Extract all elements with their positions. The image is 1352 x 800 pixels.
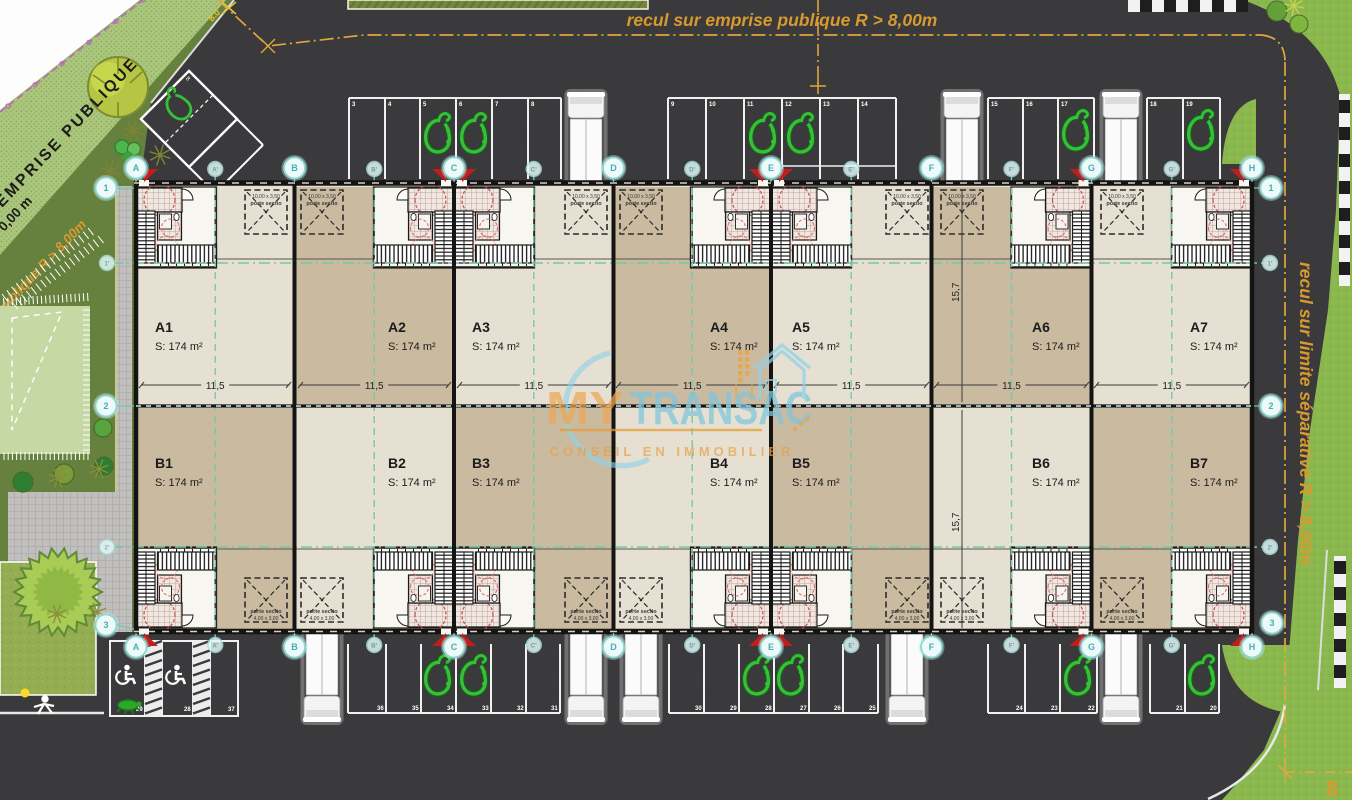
svg-text:2’: 2’ [1267,546,1272,552]
svg-text:S: 174 m²: S: 174 m² [710,341,758,353]
svg-text:B: B [291,163,298,173]
svg-text:B3: B3 [472,455,490,471]
svg-text:14: 14 [861,102,868,108]
svg-text:S: 174 m²: S: 174 m² [1032,477,1080,489]
svg-text:TRANSAC: TRANSAC [630,382,812,434]
svg-text:35: 35 [412,706,419,712]
svg-text:porte sectio: porte sectio [570,609,602,615]
svg-text:11,5: 11,5 [524,381,543,392]
svg-text:E: E [768,642,774,652]
svg-text:B2: B2 [388,455,406,471]
svg-text:19: 19 [1186,102,1193,108]
svg-text:B7: B7 [1190,455,1208,471]
svg-text:S: 174 m²: S: 174 m² [388,341,436,353]
svg-text:2: 2 [103,401,108,411]
svg-text:4,00 x 3,00: 4,00 x 3,00 [895,616,920,622]
svg-text:10,00 x 3,50: 10,00 x 3,50 [1108,194,1136,200]
svg-text:porte sectio: porte sectio [891,609,923,615]
svg-text:24: 24 [1016,706,1023,712]
svg-text:porte sectio: porte sectio [1106,201,1138,207]
svg-text:10,00 x 3,50: 10,00 x 3,50 [572,194,600,200]
svg-text:15: 15 [991,102,998,108]
svg-text:A3: A3 [472,319,490,335]
svg-text:11,5: 11,5 [842,381,861,392]
svg-text:S: 174 m²: S: 174 m² [792,341,840,353]
svg-text:2’: 2’ [104,546,109,552]
svg-text:12: 12 [785,102,792,108]
svg-text:A5: A5 [792,319,810,335]
svg-text:1: 1 [1268,183,1273,193]
svg-text:A4: A4 [710,319,728,335]
svg-text:17: 17 [1061,102,1068,108]
svg-text:H: H [1249,163,1256,173]
svg-text:29: 29 [730,706,737,712]
svg-text:8: 8 [1326,776,1338,800]
svg-text:13: 13 [823,102,830,108]
svg-text:30: 30 [695,706,702,712]
svg-text:37: 37 [228,707,235,713]
svg-text:porte sectio: porte sectio [625,201,657,207]
svg-text:S: 174 m²: S: 174 m² [155,477,203,489]
svg-text:1’: 1’ [104,262,109,268]
svg-text:S: 174 m²: S: 174 m² [1190,341,1238,353]
svg-text:A: A [133,642,140,652]
svg-text:E’: E’ [848,644,854,650]
svg-text:D: D [610,163,617,173]
svg-text:recul sur limite séparative R: recul sur limite séparative R > 8,00m [1296,262,1316,565]
svg-text:36: 36 [377,706,384,712]
svg-text:31: 31 [551,706,558,712]
svg-text:4,00 x 3,00: 4,00 x 3,00 [310,616,335,622]
svg-text:porte sectio: porte sectio [250,201,282,207]
svg-text:porte sectio: porte sectio [306,609,338,615]
svg-text:E’: E’ [848,168,854,174]
svg-text:C: C [451,163,458,173]
svg-text:18: 18 [1150,102,1157,108]
svg-text:22: 22 [1088,706,1095,712]
svg-text:A’: A’ [212,168,218,174]
svg-text:11,5: 11,5 [1162,381,1181,392]
svg-text:11,5: 11,5 [365,381,384,392]
svg-text:15,7: 15,7 [951,512,962,532]
svg-text:16: 16 [1026,102,1033,108]
svg-text:B6: B6 [1032,455,1050,471]
svg-text:11: 11 [747,102,754,108]
svg-text:F’: F’ [1009,644,1015,650]
svg-text:10,00 x 3,50: 10,00 x 3,50 [252,194,280,200]
svg-text:26: 26 [834,706,841,712]
svg-text:4,00 x 3,00: 4,00 x 3,00 [629,616,654,622]
svg-text:B: B [291,642,298,652]
svg-text:3: 3 [1269,618,1274,628]
svg-text:15,7: 15,7 [951,282,962,302]
svg-text:MY: MY [546,382,624,434]
svg-text:porte sectio: porte sectio [306,201,338,207]
svg-text:D: D [610,642,617,652]
svg-text:4,00 x 3,00: 4,00 x 3,00 [574,616,599,622]
svg-text:E: E [768,163,774,173]
svg-text:D’: D’ [689,168,695,174]
svg-text:A6: A6 [1032,319,1050,335]
svg-text:porte sectio: porte sectio [250,609,282,615]
svg-text:G: G [1088,163,1095,173]
svg-text:G: G [1088,642,1095,652]
svg-text:porte sectio: porte sectio [625,609,657,615]
svg-text:C’: C’ [531,168,537,174]
svg-text:C’: C’ [531,644,537,650]
svg-text:F: F [929,163,935,173]
svg-text:C: C [451,642,458,652]
svg-text:33: 33 [482,706,489,712]
svg-text:10: 10 [709,102,716,108]
svg-text:A: A [133,163,140,173]
svg-text:2: 2 [1268,401,1273,411]
svg-text:porte sectio: porte sectio [570,201,602,207]
svg-text:S: 174 m²: S: 174 m² [792,477,840,489]
svg-text:4,00 x 3,00: 4,00 x 3,00 [1110,616,1135,622]
svg-text:S: 174 m²: S: 174 m² [388,477,436,489]
svg-text:10,00 x 3,50: 10,00 x 3,50 [627,194,655,200]
svg-text:28: 28 [765,706,772,712]
svg-text:3: 3 [103,620,108,630]
svg-text:S: 174 m²: S: 174 m² [1190,477,1238,489]
svg-text:10,00 x 3,50: 10,00 x 3,50 [308,194,336,200]
svg-text:F’: F’ [1009,168,1015,174]
svg-text:A’: A’ [212,644,218,650]
svg-text:1: 1 [103,183,108,193]
svg-text:S: 174 m²: S: 174 m² [710,477,758,489]
svg-text:CONSEIL EN IMMOBILIER: CONSEIL EN IMMOBILIER [550,444,795,459]
svg-text:B1: B1 [155,455,173,471]
svg-text:porte sectio: porte sectio [1106,609,1138,615]
svg-text:27: 27 [800,706,807,712]
svg-text:32: 32 [517,706,524,712]
svg-text:21: 21 [1176,706,1183,712]
svg-text:B5: B5 [792,455,810,471]
svg-text:B’: B’ [371,644,377,650]
svg-text:11,5: 11,5 [206,381,225,392]
svg-text:10,00 x 3,50: 10,00 x 3,50 [893,194,921,200]
svg-text:S: 174 m²: S: 174 m² [472,477,520,489]
svg-text:28: 28 [184,707,191,713]
svg-text:S: 174 m²: S: 174 m² [472,341,520,353]
svg-text:20: 20 [1210,706,1217,712]
svg-text:H: H [1249,642,1256,652]
svg-text:B’: B’ [371,168,377,174]
svg-text:G’: G’ [1169,168,1176,174]
svg-text:34: 34 [447,706,454,712]
svg-text:23: 23 [1051,706,1058,712]
svg-text:recul sur emprise publique R >: recul sur emprise publique R > 8,00m [627,10,938,30]
svg-text:G’: G’ [1169,644,1176,650]
svg-text:4,00 x 3,00: 4,00 x 3,00 [254,616,279,622]
svg-text:1’: 1’ [1267,262,1272,268]
svg-text:A7: A7 [1190,319,1208,335]
svg-text:F: F [929,642,935,652]
svg-text:11,5: 11,5 [1002,381,1021,392]
svg-text:A2: A2 [388,319,406,335]
svg-text:S: 174 m²: S: 174 m² [1032,341,1080,353]
svg-text:S: 174 m²: S: 174 m² [155,341,203,353]
svg-text:D’: D’ [689,644,695,650]
svg-text:25: 25 [869,706,876,712]
svg-text:porte sectio: porte sectio [891,201,923,207]
svg-text:A1: A1 [155,319,173,335]
